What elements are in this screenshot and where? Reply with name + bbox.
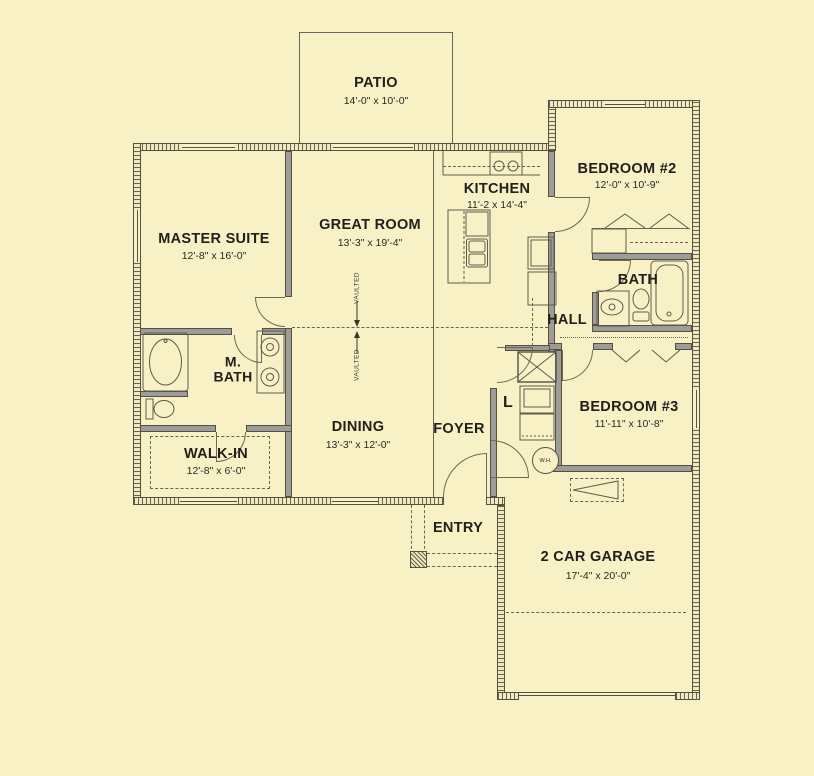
dims-dining: 13'-3" x 12'-0": [326, 439, 391, 451]
fixtures-layer: [0, 0, 814, 776]
label-vaulted-upper: VAULTED: [354, 272, 361, 304]
attic-access-arrow: [573, 481, 618, 499]
dryer: [520, 414, 554, 440]
floor-plan: W.H. PATIO 14'-0" x 10'-0" MASTER SUITE …: [0, 0, 814, 776]
dims-walk-in: 12'-8" x 6'-0": [187, 465, 246, 477]
label-master-suite: MASTER SUITE: [158, 232, 270, 248]
label-walk-in: WALK-IN: [184, 447, 248, 463]
furnace-chase: [518, 352, 556, 382]
mbath-double-vanity: [257, 331, 284, 393]
dims-great-room: 13'-3" x 19'-4": [338, 237, 403, 249]
water-heater-label: W.H.: [540, 458, 552, 464]
kitchen-island: [448, 210, 490, 283]
bath-toilet: [633, 289, 649, 321]
label-garage: 2 CAR GARAGE: [541, 550, 656, 566]
bath-vanity: [597, 291, 629, 326]
label-bath: BATH: [618, 273, 658, 289]
dims-master-suite: 12'-8" x 16'-0": [182, 250, 247, 262]
label-hall: HALL: [547, 313, 587, 329]
label-bedroom3: BEDROOM #3: [580, 400, 679, 416]
mbath-toilet: [146, 399, 174, 419]
label-laundry: L: [503, 394, 513, 412]
dims-bedroom2: 12'-0" x 10'-9": [595, 179, 660, 191]
bedroom2-closet-bifold: [592, 214, 688, 253]
label-vaulted-lower: VAULTED: [354, 349, 361, 381]
vaulted-arrow-down: [354, 301, 360, 327]
dims-patio: 14'-0" x 10'-0": [344, 95, 409, 107]
kitchen-counter: [443, 151, 540, 175]
dims-bedroom3: 11'-11" x 10'-8": [595, 418, 664, 430]
bath-tub: [651, 261, 688, 325]
label-patio: PATIO: [354, 76, 398, 92]
label-kitchen: KITCHEN: [464, 182, 531, 198]
kitchen-pantry: [528, 272, 556, 305]
label-foyer: FOYER: [433, 422, 484, 438]
kitchen-range: [490, 152, 522, 175]
label-entry: ENTRY: [433, 521, 483, 537]
kitchen-fridge: [528, 237, 554, 269]
water-heater: W.H.: [532, 447, 559, 474]
washer: [520, 386, 554, 413]
label-great-room: GREAT ROOM: [319, 218, 421, 234]
dims-garage: 17'-4" x 20'-0": [566, 570, 631, 582]
label-master-bath: M. BATH: [211, 355, 255, 386]
mbath-tub: [143, 333, 188, 391]
dims-kitchen: 11'-2 x 14'-4": [467, 199, 527, 211]
label-dining: DINING: [332, 420, 385, 436]
label-bedroom2: BEDROOM #2: [578, 162, 677, 178]
bedroom3-closet-bifold: [612, 350, 680, 362]
